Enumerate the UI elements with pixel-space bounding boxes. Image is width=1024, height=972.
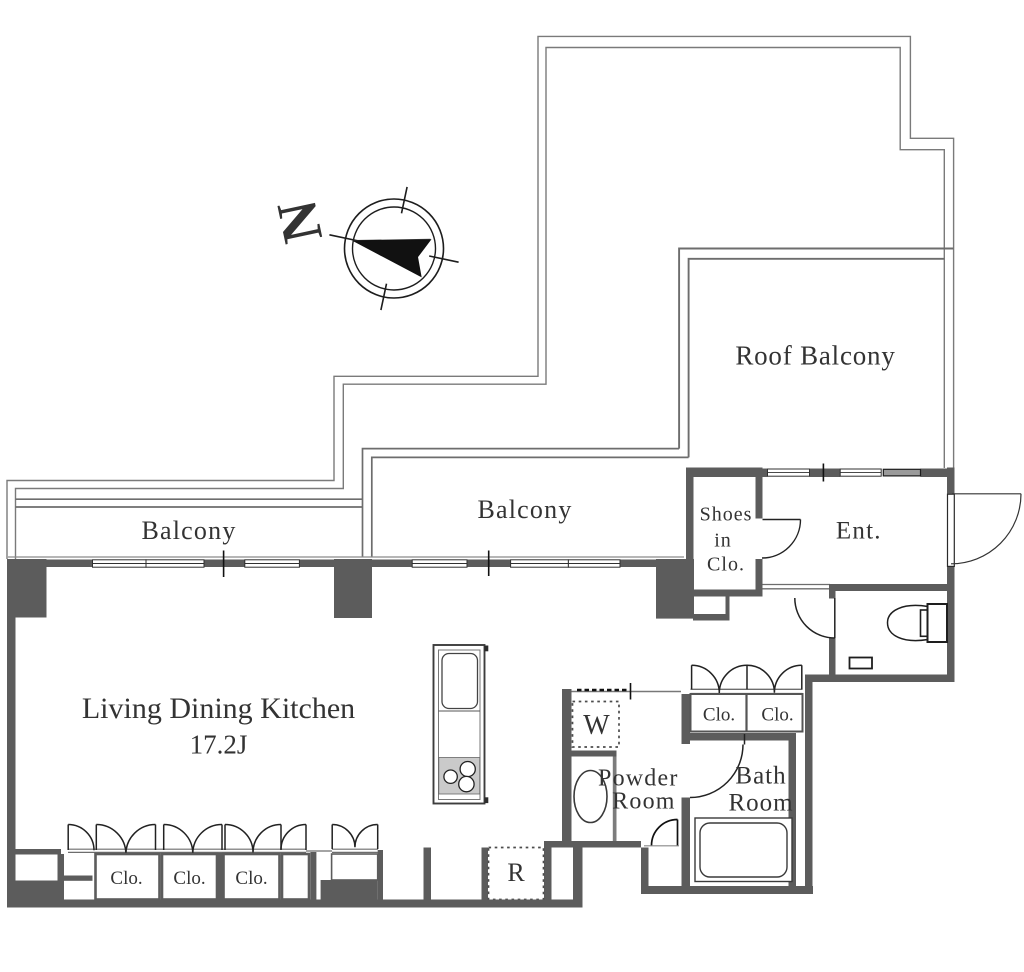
svg-text:N: N [265,195,335,248]
svg-text:Clo.: Clo. [235,868,267,889]
svg-text:Living Dining Kitchen: Living Dining Kitchen [82,692,355,725]
svg-text:in: in [714,530,732,552]
svg-text:Clo.: Clo. [110,868,142,889]
svg-text:Ent.: Ent. [836,518,882,545]
svg-text:17.2J: 17.2J [190,730,248,760]
svg-text:Roof Balcony: Roof Balcony [735,341,895,371]
svg-text:Clo.: Clo. [173,868,205,889]
svg-text:Clo.: Clo. [703,705,735,726]
svg-text:Room: Room [612,789,675,815]
svg-text:Room: Room [728,790,793,817]
svg-text:Balcony: Balcony [141,516,236,545]
svg-text:W: W [583,710,610,741]
svg-text:Balcony: Balcony [477,495,572,524]
svg-text:Bath: Bath [735,763,786,790]
svg-text:Clo.: Clo. [761,705,793,726]
svg-text:R: R [507,858,525,887]
svg-text:Shoes: Shoes [700,504,753,526]
svg-text:Clo.: Clo. [707,554,745,576]
